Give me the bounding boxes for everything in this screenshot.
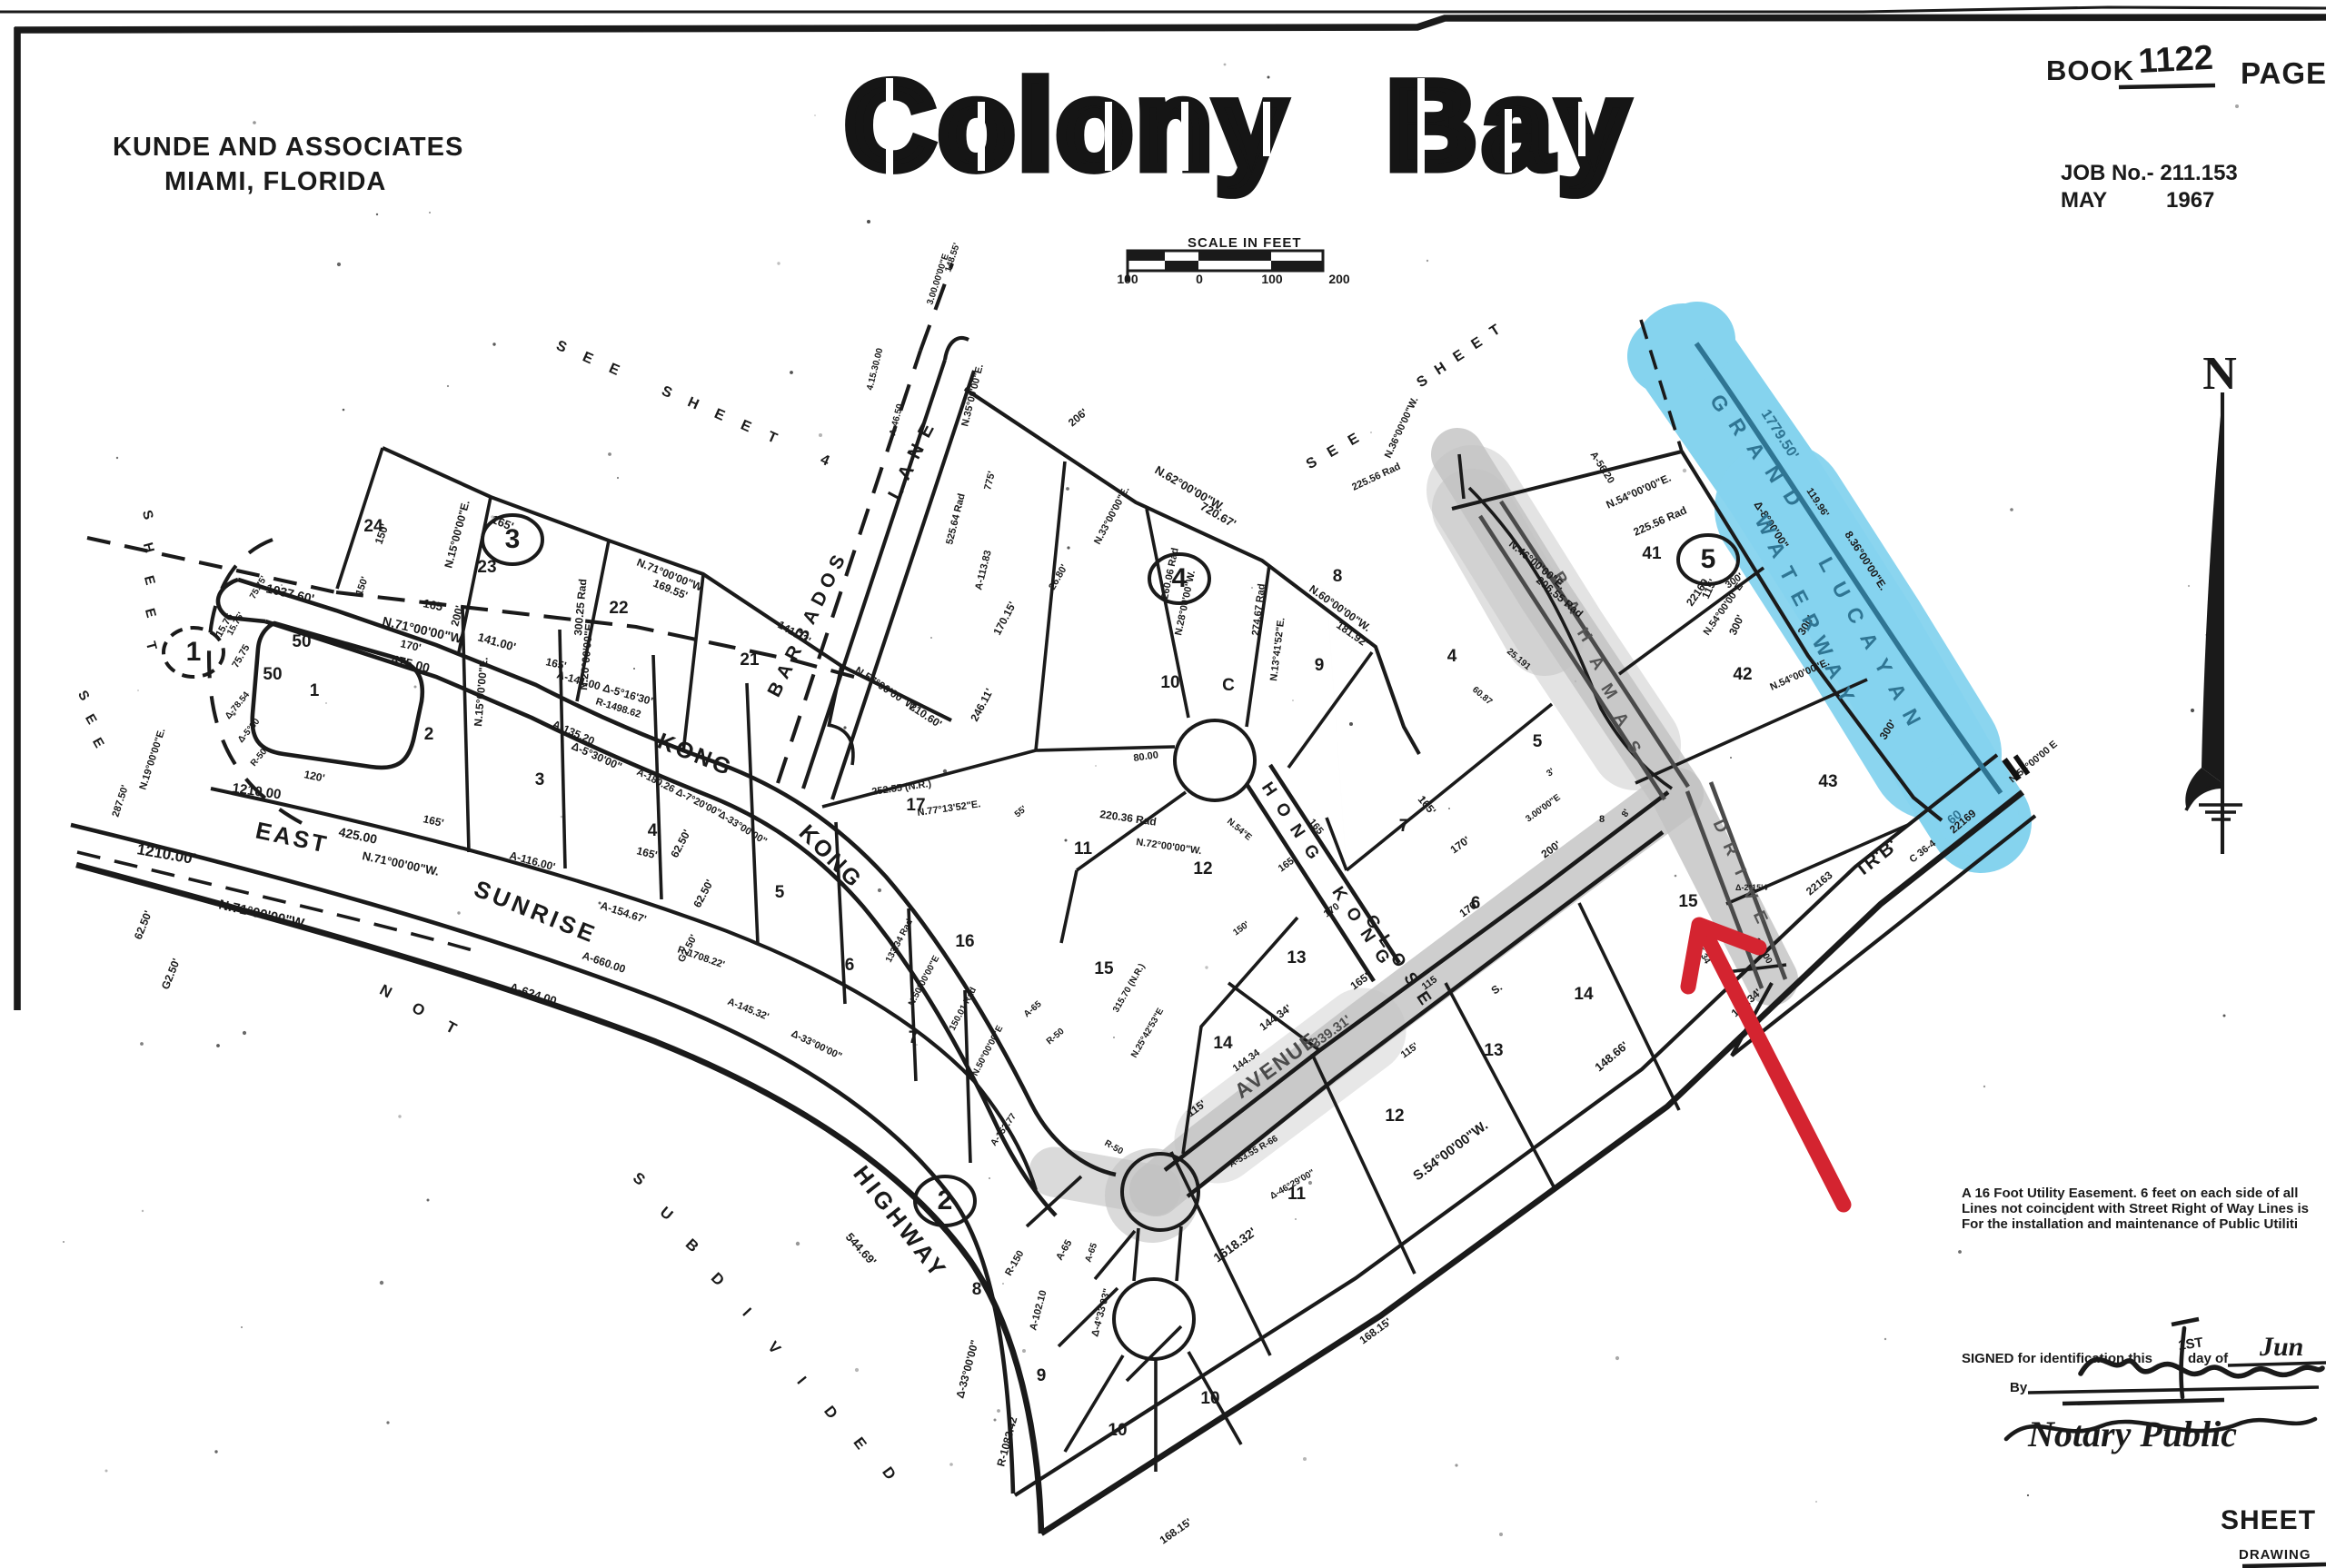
svg-text:Colony: Colony (845, 56, 1288, 195)
svg-text:C: C (1222, 676, 1235, 695)
svg-text:4: 4 (648, 821, 658, 840)
svg-text:23: 23 (477, 558, 496, 577)
svg-text:day of: day of (2188, 1351, 2229, 1366)
svg-text:Δ-2°15'4: Δ-2°15'4 (1735, 883, 1767, 892)
svg-text:For the installation and maint: For the installation and maintenance of … (1962, 1216, 2298, 1232)
svg-text:MAY: MAY (2061, 188, 2107, 213)
svg-text:22: 22 (609, 599, 628, 618)
svg-text:11: 11 (1074, 839, 1093, 858)
svg-text:N: N (2202, 348, 2237, 400)
svg-text:1: 1 (186, 637, 202, 667)
svg-text:12: 12 (1385, 1107, 1404, 1126)
svg-text:4: 4 (1447, 647, 1457, 666)
svg-text:21: 21 (740, 650, 760, 670)
svg-text:5: 5 (775, 883, 785, 902)
svg-text:15: 15 (1678, 892, 1698, 911)
svg-text:BOOK: BOOK (2046, 55, 2134, 86)
svg-text:SCALE IN FEET: SCALE IN FEET (1188, 235, 1302, 251)
svg-text:13: 13 (1287, 948, 1306, 968)
svg-text:1967: 1967 (2166, 188, 2214, 213)
svg-text:12: 12 (1193, 859, 1212, 878)
svg-text:10: 10 (1200, 1389, 1219, 1408)
svg-text:50: 50 (263, 665, 282, 684)
svg-text:100: 100 (1261, 272, 1283, 286)
svg-text:PAGE: PAGE (2241, 56, 2326, 90)
svg-text:3: 3 (535, 770, 545, 789)
svg-text:9: 9 (1315, 656, 1325, 675)
svg-text:MIAMI, FLORIDA: MIAMI, FLORIDA (164, 167, 386, 196)
svg-text:KUNDE AND ASSOCIATES: KUNDE AND ASSOCIATES (113, 133, 463, 162)
svg-text:8: 8 (1333, 567, 1343, 586)
svg-text:43: 43 (1818, 772, 1837, 791)
svg-text:0: 0 (1196, 272, 1203, 286)
svg-text:50: 50 (292, 632, 311, 651)
svg-text:41: 41 (1642, 544, 1662, 563)
svg-text:10: 10 (1108, 1421, 1127, 1440)
svg-text:Jun: Jun (2259, 1332, 2303, 1362)
svg-text:Notary Public: Notary Public (2027, 1414, 2237, 1454)
svg-text:7: 7 (909, 1028, 919, 1047)
svg-text:1: 1 (310, 681, 320, 700)
svg-text:SHEET: SHEET (2221, 1505, 2316, 1535)
svg-text:8: 8 (972, 1280, 982, 1299)
svg-text:10: 10 (1160, 673, 1179, 692)
svg-text:JOB No.- 211.153: JOB No.- 211.153 (2061, 161, 2238, 185)
svg-text:14: 14 (1213, 1034, 1233, 1053)
svg-text:2: 2 (938, 1186, 953, 1216)
svg-text:7: 7 (1399, 817, 1409, 836)
svg-text:13: 13 (1484, 1041, 1503, 1060)
svg-text:16: 16 (955, 932, 974, 951)
svg-text:2: 2 (424, 725, 434, 744)
svg-text:14: 14 (1574, 985, 1594, 1004)
svg-text:8: 8 (1599, 814, 1605, 825)
svg-text:5: 5 (1701, 544, 1716, 574)
svg-text:9: 9 (1037, 1366, 1047, 1385)
svg-text:15: 15 (1094, 959, 1114, 978)
svg-text:200: 200 (1328, 272, 1350, 286)
svg-text:1122: 1122 (2137, 39, 2214, 81)
svg-text:By: By (2010, 1380, 2028, 1395)
svg-text:DRAWING: DRAWING (2239, 1547, 2311, 1563)
svg-text:5: 5 (1533, 732, 1543, 751)
svg-text:Lines not coincident with Stre: Lines not coincident with Street Right o… (1962, 1201, 2309, 1216)
svg-text:6: 6 (845, 956, 855, 975)
svg-text:42: 42 (1733, 665, 1752, 684)
svg-text:100: 100 (1117, 272, 1138, 286)
svg-text:A 16 Foot Utility Easement. 6: A 16 Foot Utility Easement. 6 feet on ea… (1962, 1186, 2298, 1201)
